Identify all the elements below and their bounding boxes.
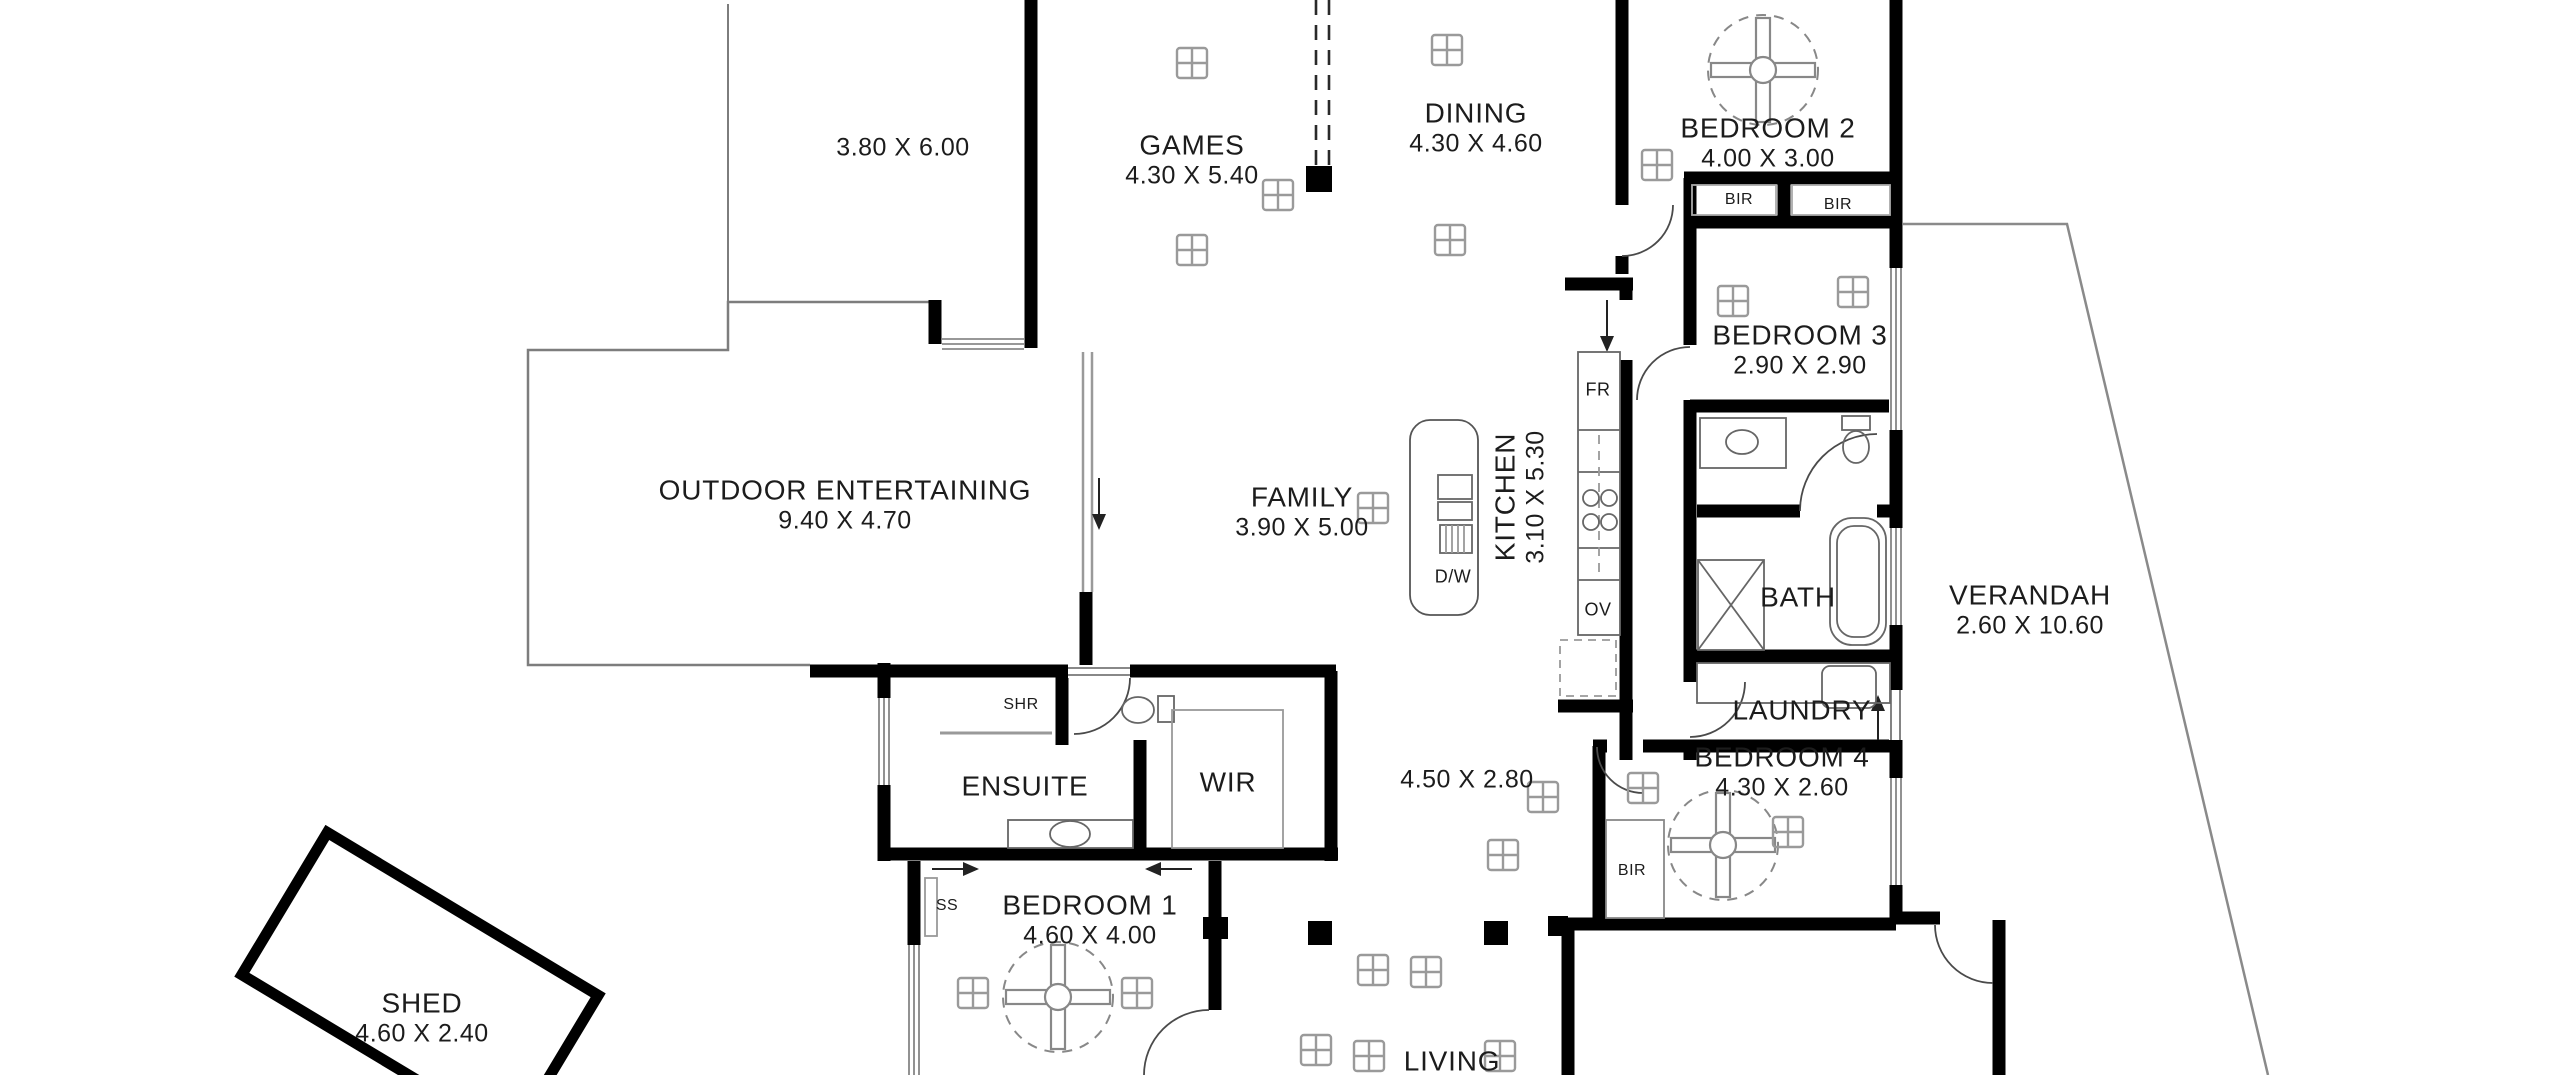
room-label-wir: WIR: [1200, 765, 1257, 798]
room-label-living: LIVING: [1404, 1044, 1501, 1075]
label-bir-bed2-left: BIR: [1725, 191, 1753, 209]
room-label-meals-nook: 4.50 X 2.80: [1400, 765, 1533, 795]
room-label-ensuite: ENSUITE: [962, 769, 1089, 802]
room-label-bedroom-4: BEDROOM 44.30 X 2.60: [1694, 741, 1869, 804]
bath-shower: [1698, 560, 1764, 650]
label-bed1-ss: SS: [936, 897, 958, 915]
wet-area-fixtures: [925, 185, 1890, 936]
label-shower: SHR: [1003, 696, 1038, 714]
room-label-kitchen: KITCHEN3.10 X 5.30: [1489, 430, 1552, 563]
floor-plan: 3.80 X 6.00 GAMES4.30 X 5.40 DINING4.30 …: [0, 0, 2560, 1075]
vanity-lobby: [1700, 418, 1786, 468]
boundary-lines: [528, 4, 2268, 1075]
sliding-door-family: [1083, 352, 1092, 592]
toilet-ensuite-bowl: [1122, 697, 1154, 723]
room-label-laundry: LAUNDRY: [1733, 693, 1872, 726]
label-bir-bed4: BIR: [1618, 862, 1646, 880]
room-label-bedroom-3: BEDROOM 32.90 X 2.90: [1712, 319, 1887, 382]
room-label-bedroom-2: BEDROOM 24.00 X 3.00: [1680, 112, 1855, 175]
room-label-bath: BATH: [1760, 580, 1836, 613]
label-oven: OV: [1584, 600, 1611, 621]
room-label-lawn-area: 3.80 X 6.00: [836, 133, 969, 163]
label-dishwasher: D/W: [1435, 567, 1472, 588]
room-label-outdoor-entertaining: OUTDOOR ENTERTAINING9.40 X 4.70: [659, 474, 1032, 537]
room-label-games: GAMES4.30 X 5.40: [1125, 129, 1258, 192]
games-dining-opening: [1316, 0, 1329, 170]
room-label-verandah: VERANDAH2.60 X 10.60: [1949, 579, 2111, 642]
room-label-family: FAMILY3.90 X 5.00: [1235, 481, 1368, 544]
label-bir-bed2-right: BIR: [1824, 196, 1852, 214]
room-label-dining: DINING4.30 X 4.60: [1409, 97, 1542, 160]
dishwasher-hatch: [1440, 525, 1472, 553]
room-label-bedroom-1: BEDROOM 14.60 X 4.00: [1002, 889, 1177, 952]
label-fridge: FR: [1586, 380, 1611, 401]
room-label-shed: SHED4.60 X 2.40: [355, 987, 488, 1050]
